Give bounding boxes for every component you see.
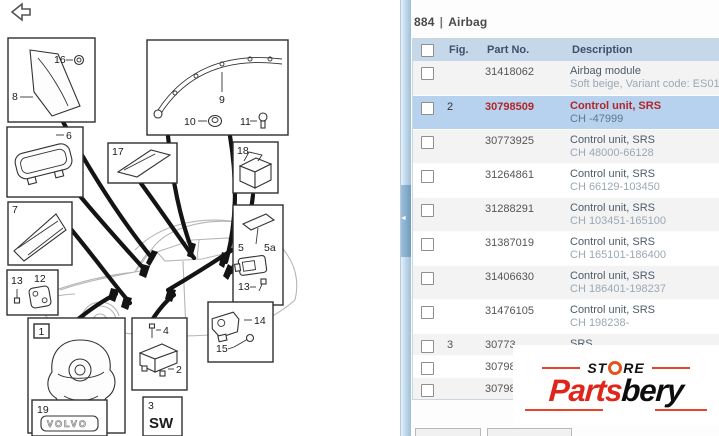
chassis-range-line: CH 165101-186400 (570, 249, 719, 262)
select-all-checkbox[interactable] (421, 44, 434, 57)
callout-11: 11 (240, 116, 251, 128)
part-box-3[interactable]: 3 SW (143, 397, 182, 436)
back-arrow-icon[interactable] (12, 4, 30, 20)
logo-rule-bottom-right (655, 409, 707, 411)
callout-18: 18 (237, 145, 249, 157)
logo-rule-top-left (542, 367, 580, 369)
part-number-cell[interactable]: 30798 (485, 383, 516, 395)
table-row[interactable]: 2 30798509 Control unit, SRS CH -47999 (413, 95, 719, 129)
part-box-4-2[interactable]: 4 2 (132, 318, 187, 390)
section-title: 884|Airbag (414, 15, 487, 29)
row-checkbox[interactable] (421, 384, 434, 397)
description-line: Control unit, SRS (570, 201, 719, 215)
callout-8: 8 (12, 91, 18, 103)
table-row[interactable]: 31476105 Control unit, SRS CH 198238- (413, 299, 719, 333)
description-cell: Control unit, SRS CH 48000-66128 (570, 133, 719, 160)
callout-13b: 13 (238, 281, 250, 293)
part-box-8-16[interactable]: 8 16 (8, 38, 95, 122)
row-checkbox[interactable] (421, 272, 434, 285)
logo-rule-bottom-left (525, 409, 603, 411)
row-checkbox[interactable] (421, 362, 434, 375)
chassis-range-line: CH 48000-66128 (570, 147, 719, 160)
diagram-panel: 8 16 9 10 (0, 0, 400, 436)
logo-bery-text: bery (620, 373, 684, 408)
row-checkbox[interactable] (421, 102, 434, 115)
chassis-range-line: CH 66129-103450 (570, 181, 719, 194)
callout-13a: 13 (11, 275, 23, 287)
row-checkbox[interactable] (421, 67, 434, 80)
column-header-description[interactable]: Description (572, 44, 719, 56)
row-checkbox[interactable] (421, 136, 434, 149)
description-cell: Control unit, SRS CH 66129-103450 (570, 167, 719, 194)
title-separator: | (440, 15, 444, 29)
sw-text: SW (149, 415, 174, 432)
column-header-fig[interactable]: Fig. (449, 44, 487, 56)
fig-cell: 3 (447, 339, 453, 351)
part-box-9-10-11[interactable]: 9 10 11 (147, 40, 288, 135)
chassis-range-line: CH 198238- (570, 317, 719, 330)
table-row[interactable]: 31387019 Control unit, SRS CH 165101-186… (413, 231, 719, 265)
description-line: Control unit, SRS (570, 235, 719, 249)
part-box-5-5a-13[interactable]: 5 5a 13 (233, 205, 283, 305)
bottom-action-button-2[interactable] (487, 428, 572, 436)
table-row[interactable]: 31418062 Airbag module Soft beige, Varia… (413, 61, 719, 95)
callout-5: 5 (238, 242, 244, 254)
description-line: Control unit, SRS (570, 133, 719, 147)
callout-2: 2 (176, 364, 182, 376)
description-line: Control unit, SRS (570, 303, 719, 317)
table-row[interactable]: 31264861 Control unit, SRS CH 66129-1034… (413, 163, 719, 197)
callout-19: 19 (37, 404, 49, 416)
callout-3: 3 (148, 400, 154, 412)
part-box-17[interactable]: 17 (108, 143, 177, 183)
row-checkbox[interactable] (421, 170, 434, 183)
row-checkbox[interactable] (421, 306, 434, 319)
part-number-cell[interactable]: 31476105 (485, 305, 534, 317)
part-number-cell[interactable]: 30773 (485, 339, 516, 351)
part-box-19[interactable]: 19 VOLVO (32, 400, 107, 436)
callout-14: 14 (254, 315, 266, 327)
bottom-action-button-1[interactable] (415, 428, 481, 436)
part-number-cell[interactable]: 31406630 (485, 271, 534, 283)
fig-cell: 2 (447, 101, 453, 113)
part-number-cell[interactable]: 31418062 (485, 66, 534, 78)
callout-4: 4 (163, 325, 169, 337)
description-cell: Control unit, SRS CH 165101-186400 (570, 235, 719, 262)
part-box-6[interactable]: 6 (7, 127, 83, 197)
table-row[interactable]: 31406630 Control unit, SRS CH 186401-198… (413, 265, 719, 299)
column-header-part[interactable]: Part No. (487, 44, 572, 56)
callout-9: 9 (219, 94, 225, 106)
description-cell: Control unit, SRS CH 103451-165100 (570, 201, 719, 228)
panel-splitter[interactable]: ◄ (400, 0, 411, 436)
partsbery-store-logo: STRE Partsbery (513, 345, 719, 425)
part-number-cell[interactable]: 30773925 (485, 135, 534, 147)
collapse-left-icon: ◄ (400, 215, 407, 222)
table-row[interactable]: 30773925 Control unit, SRS CH 48000-6612… (413, 129, 719, 163)
description-line: Airbag module (570, 64, 719, 78)
logo-parts-text: Parts (548, 373, 623, 408)
section-code: 884 (414, 15, 435, 29)
callout-6: 6 (66, 130, 72, 142)
callout-12: 12 (34, 273, 46, 285)
part-number-cell[interactable]: 30798509 (485, 101, 534, 113)
part-number-cell[interactable]: 31264861 (485, 169, 534, 181)
callout-16: 16 (54, 54, 66, 66)
callout-1: 1 (39, 326, 45, 338)
logo-rule-top-right (652, 367, 690, 369)
description-line: Control unit, SRS (570, 99, 719, 113)
table-header-row: Fig. Part No. Description (413, 39, 719, 61)
airbag-exploded-diagram: 8 16 9 10 (0, 0, 400, 436)
callout-7: 7 (12, 204, 18, 216)
part-box-14-15[interactable]: 14 15 (208, 302, 273, 362)
row-checkbox[interactable] (421, 340, 434, 353)
table-row[interactable]: 31288291 Control unit, SRS CH 103451-165… (413, 197, 719, 231)
part-box-18[interactable]: 18 (233, 142, 278, 193)
splitter-handle[interactable]: ◄ (401, 185, 411, 257)
chassis-range-line: CH -47999 (570, 113, 719, 126)
callout-15: 15 (216, 343, 228, 355)
part-number-cell[interactable]: 31288291 (485, 203, 534, 215)
chassis-range-line: CH 103451-165100 (570, 215, 719, 228)
chassis-range-line: Soft beige, Variant code: ES01 and (570, 78, 719, 91)
part-number-cell[interactable]: 30798 (485, 361, 516, 373)
row-checkbox[interactable] (421, 204, 434, 217)
row-checkbox[interactable] (421, 238, 434, 251)
description-cell: Airbag module Soft beige, Variant code: … (570, 64, 719, 91)
section-name: Airbag (448, 15, 487, 29)
description-cell: Control unit, SRS CH -47999 (570, 99, 719, 126)
callout-10: 10 (184, 116, 196, 128)
part-box-7[interactable]: 7 (8, 202, 72, 265)
chassis-range-line: CH 186401-198237 (570, 283, 719, 296)
description-cell: Control unit, SRS CH 198238- (570, 303, 719, 330)
description-line: Control unit, SRS (570, 269, 719, 283)
parts-catalog-screen: 8 16 9 10 (0, 0, 719, 436)
volvo-emblem-text: VOLVO (47, 419, 88, 429)
part-box-12-13[interactable]: 13 12 (7, 270, 58, 315)
description-line: Control unit, SRS (570, 167, 719, 181)
description-cell: Control unit, SRS CH 186401-198237 (570, 269, 719, 296)
part-number-cell[interactable]: 31387019 (485, 237, 534, 249)
callout-17: 17 (112, 146, 124, 158)
logo-wordmark: Partsbery (548, 376, 684, 406)
callout-5a: 5a (264, 242, 276, 254)
